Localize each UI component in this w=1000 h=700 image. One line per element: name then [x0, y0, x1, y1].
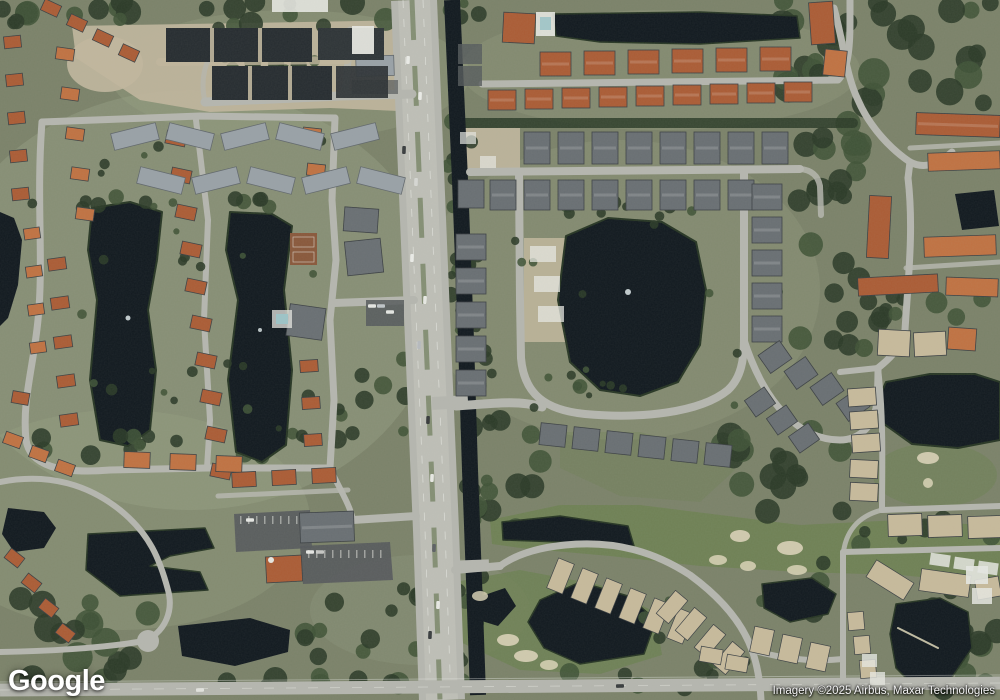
grain-overlay: [0, 0, 1000, 700]
map-viewport[interactable]: Google Imagery ©2025 Airbus, Maxar Techn…: [0, 0, 1000, 700]
satellite-canvas[interactable]: [0, 0, 1000, 700]
imagery-attribution: Imagery ©2025 Airbus, Maxar Technologies: [773, 685, 995, 697]
google-logo[interactable]: Google: [8, 665, 105, 698]
